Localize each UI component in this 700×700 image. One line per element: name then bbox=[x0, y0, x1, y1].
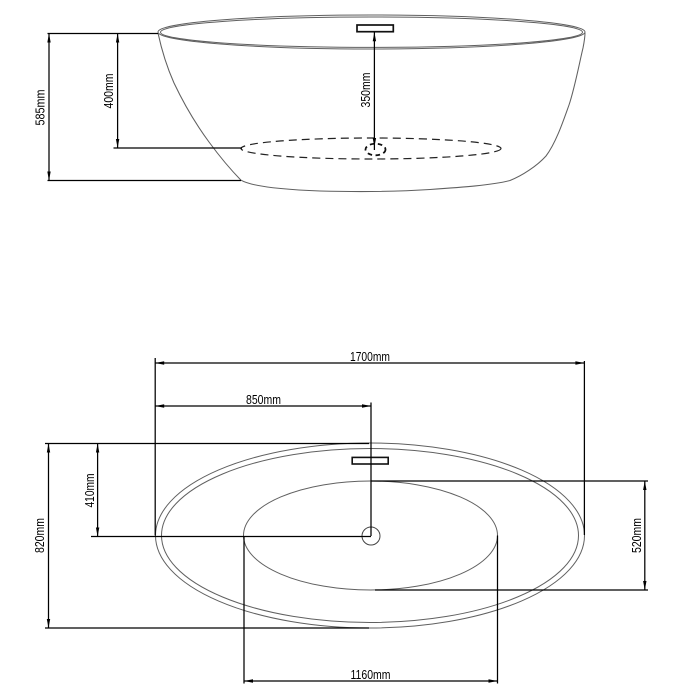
svg-text:400mm: 400mm bbox=[102, 74, 116, 109]
svg-text:585mm: 585mm bbox=[34, 90, 48, 126]
svg-text:820mm: 820mm bbox=[33, 518, 47, 553]
svg-text:1160mm: 1160mm bbox=[351, 668, 391, 682]
svg-text:410mm: 410mm bbox=[83, 474, 97, 508]
svg-text:350mm: 350mm bbox=[359, 73, 373, 108]
svg-text:850mm: 850mm bbox=[246, 393, 281, 407]
svg-text:520mm: 520mm bbox=[630, 518, 644, 553]
svg-text:1700mm: 1700mm bbox=[350, 350, 390, 364]
